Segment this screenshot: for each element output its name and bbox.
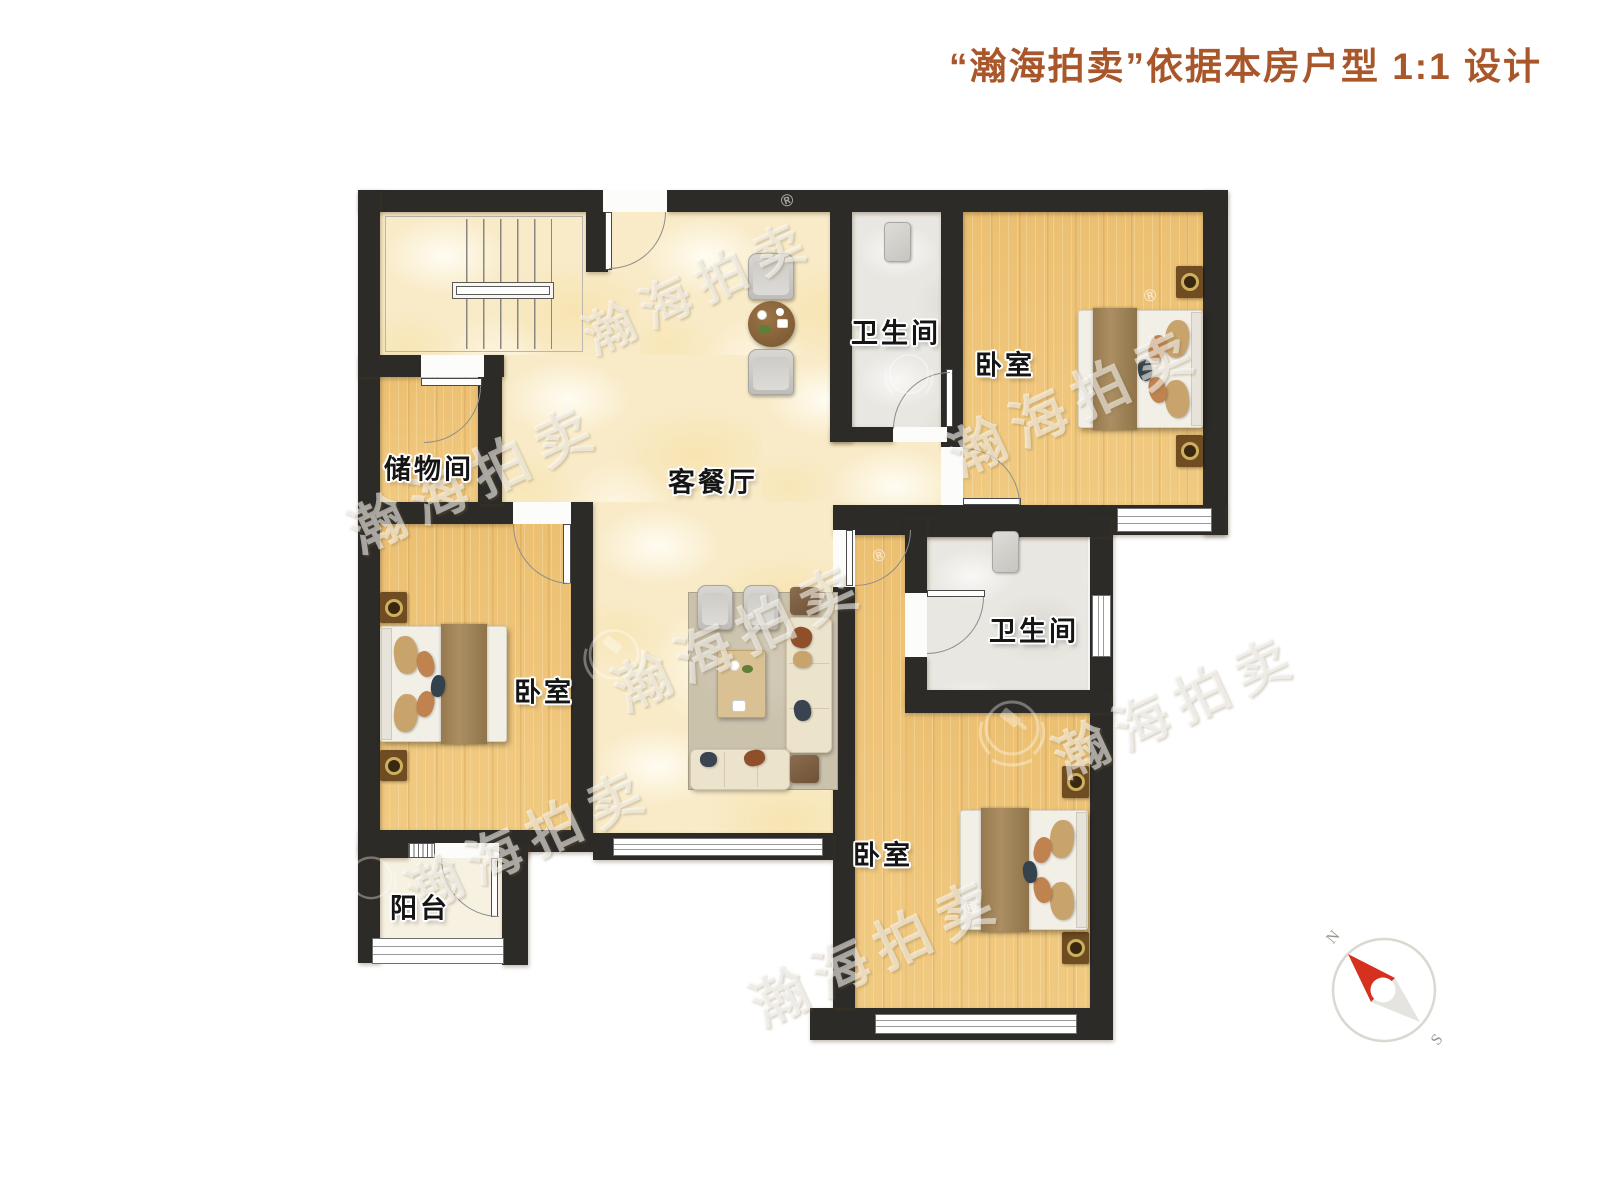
nightstand [380, 592, 407, 623]
door-opening-bathroom-middle [905, 593, 927, 657]
door-opening-storage [421, 355, 484, 377]
window [408, 843, 435, 858]
dining-table [748, 301, 795, 347]
room-label-balcony: 阳台 [390, 887, 450, 926]
room-label-bedroom-bottom-right: 卧室 [853, 834, 913, 873]
coffee-table [717, 650, 766, 718]
window [1117, 508, 1212, 532]
bed-top-right [1078, 310, 1203, 428]
bed-runner [1093, 308, 1137, 430]
wall [905, 515, 927, 593]
wall [667, 190, 1225, 212]
room-label-bathroom-top: 卫生间 [851, 312, 941, 351]
side-table [790, 755, 819, 783]
bed-pillow [1048, 819, 1076, 859]
bed-pillow [392, 693, 420, 733]
door-leaf [421, 378, 482, 386]
door-opening-bedroom-top-right [941, 447, 963, 505]
floor-plan-page: 瀚海拍卖 瀚海拍卖 瀚海拍卖 瀚海拍卖 瀚海拍卖 瀚海拍卖 瀚海拍卖 ® ® ®… [0, 0, 1600, 1200]
plate [776, 308, 784, 316]
bed-left [380, 626, 507, 742]
window [372, 938, 504, 964]
bed-pillow [1163, 379, 1191, 419]
bathroom-fixture [884, 222, 911, 262]
compass-south-label: S [1428, 1031, 1447, 1049]
kettle [732, 700, 746, 712]
plant-garnish [758, 325, 771, 334]
plate [729, 660, 740, 671]
door-opening-bathroom-top [893, 427, 947, 442]
sofa-seam [724, 752, 725, 787]
floor-bedroom-bottom-strip [855, 532, 905, 1013]
staircase-handrail [452, 282, 554, 299]
wall [1090, 515, 1113, 1008]
door-opening-entrance [603, 190, 667, 212]
bed-headboard [1191, 312, 1202, 426]
window [1092, 595, 1111, 657]
nightstand [1062, 766, 1089, 798]
door-opening-bedroom-left [513, 502, 571, 524]
window [613, 838, 823, 856]
nightstand [1062, 932, 1089, 964]
bed-pillow [1163, 319, 1191, 359]
dining-chair [748, 253, 794, 300]
sofa-pillow [793, 651, 812, 668]
bed-bottom-right [960, 810, 1088, 930]
bed-headboard [381, 628, 392, 740]
nightstand [1176, 266, 1203, 298]
wall [358, 355, 421, 377]
room-label-living-dining: 客餐厅 [668, 461, 758, 500]
bathroom-fixture [992, 531, 1019, 573]
bed-headboard [1076, 812, 1087, 928]
bed-runner [441, 624, 487, 744]
dining-chair [748, 349, 794, 395]
wall [571, 502, 593, 832]
sofa-pillow [700, 752, 717, 767]
bed-pillow [392, 635, 420, 675]
nightstand [380, 750, 407, 781]
door-leaf [846, 530, 853, 586]
armchair [743, 585, 779, 630]
dish [777, 319, 788, 328]
plate [757, 310, 767, 320]
wall [358, 502, 513, 524]
wall [905, 690, 1110, 713]
door-opening-balcony [435, 843, 499, 858]
armchair [697, 585, 733, 630]
side-table [790, 587, 819, 615]
room-label-bedroom-left: 卧室 [514, 671, 574, 710]
compass: N S [1306, 910, 1466, 1070]
bed-pillow [1048, 881, 1076, 921]
wall [358, 190, 586, 212]
wall [358, 843, 408, 858]
wall [502, 843, 528, 965]
wall [830, 427, 893, 442]
room-label-bathroom-middle: 卫生间 [989, 610, 1079, 649]
plant-garnish [742, 665, 753, 673]
room-label-storage: 储物间 [384, 448, 474, 487]
wall [1203, 190, 1228, 535]
window [875, 1014, 1077, 1034]
page-title: “瀚海拍卖”依据本房户型 1:1 设计 [949, 36, 1542, 90]
door-leaf [927, 590, 985, 597]
compass-north-label: N [1323, 927, 1344, 947]
bed-pillow [414, 649, 437, 678]
wall [830, 212, 852, 442]
nightstand [1176, 435, 1203, 467]
room-label-bedroom-top-right: 卧室 [975, 344, 1035, 383]
